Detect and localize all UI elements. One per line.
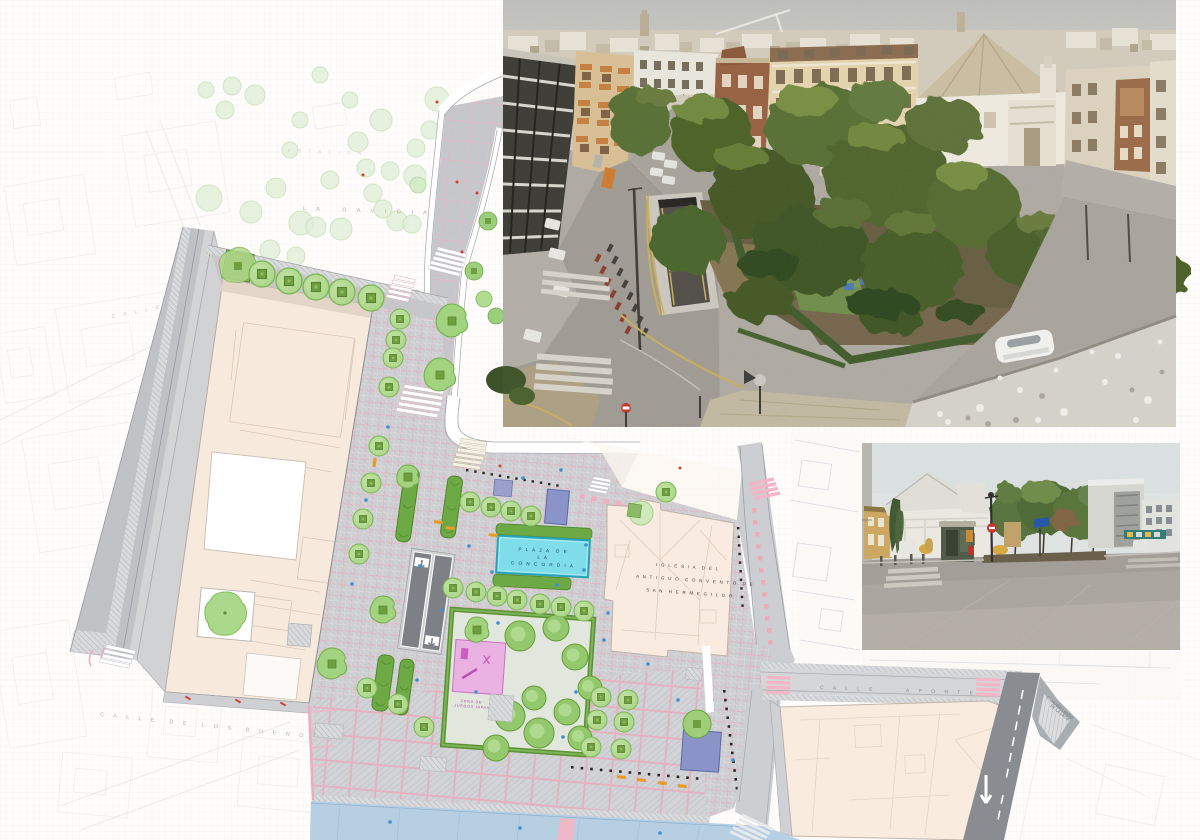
- svg-text:L A: L A: [537, 555, 548, 561]
